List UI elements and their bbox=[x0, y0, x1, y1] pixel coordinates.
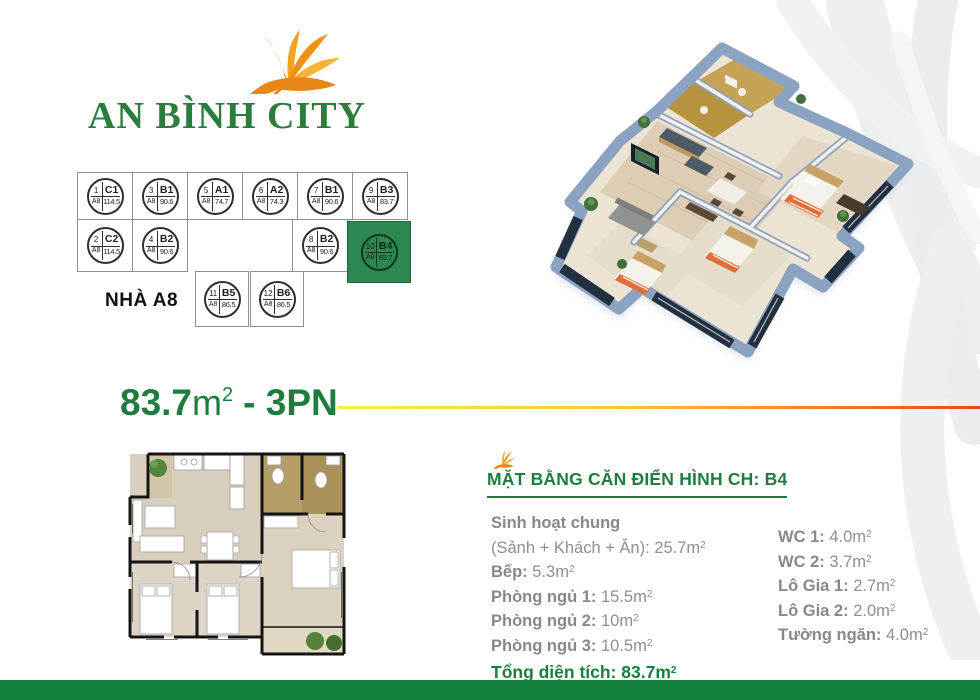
bird-of-paradise-flower-icon-small bbox=[489, 450, 519, 469]
logo-an-binh-city: AN BÌNH CITY bbox=[88, 34, 368, 142]
unit-marker: 7B1 A890.6 bbox=[307, 178, 344, 215]
room-line: Bếp: 5.3m2 bbox=[491, 559, 741, 584]
room-line: Lô Gia 1: 2.7m2 bbox=[778, 573, 968, 598]
floorplan-3d-render bbox=[492, 6, 980, 394]
unit-a8-b5: 11B5 A886.5 bbox=[195, 271, 249, 327]
logo-text: AN BÌNH CITY bbox=[88, 94, 368, 138]
unit-a8-b6: 12B6 A886.5 bbox=[250, 271, 304, 327]
unit-a8-b1a: 3B1 A890.6 bbox=[132, 172, 188, 220]
unit-a8-b3: 9B3 A883.7 bbox=[352, 172, 408, 220]
unit-marker: 1C1 A8114.5 bbox=[87, 178, 124, 215]
building-a8-unit-diagram: 1C1 A8114.5 3B1 A890.6 5A1 A874.7 6A2 A8… bbox=[75, 168, 420, 346]
room-line: Phòng ngủ 1: 15.5m2 bbox=[491, 584, 741, 609]
unit-marker: 11B5 A886.5 bbox=[204, 281, 241, 318]
unit-a8-c1: 1C1 A8114.5 bbox=[77, 172, 133, 220]
unit-marker: 5A1 A874.7 bbox=[197, 178, 234, 215]
area-value: 83.7 bbox=[120, 382, 192, 423]
unit-marker: 4B2 A890.6 bbox=[142, 227, 179, 264]
unit-marker: 2C2 A8114.5 bbox=[87, 227, 124, 264]
room-line: WC 1: 4.0m2 bbox=[778, 524, 968, 549]
unit-a8-b2a: 4B2 A890.6 bbox=[132, 219, 188, 272]
room-line: Phòng ngủ 2: 10m2 bbox=[491, 608, 741, 633]
unit-marker: 12B6 A886.5 bbox=[259, 281, 296, 318]
section-heading: MẶT BẰNG CĂN ĐIỂN HÌNH CH: B4 bbox=[487, 469, 787, 498]
building-name-label: NHÀ A8 bbox=[105, 290, 178, 312]
floorplan-2d-drawing bbox=[112, 442, 370, 680]
room-line: Phòng ngủ 3: 10.5m2 bbox=[491, 633, 741, 658]
unit-a8-b1b: 7B1 A890.6 bbox=[297, 172, 353, 220]
room-areas-right-column: WC 1: 4.0m2 WC 2: 3.7m2 Lô Gia 1: 2.7m2 … bbox=[778, 524, 968, 647]
unit-a8-b4-selected: 10B4 A883.7 bbox=[347, 221, 411, 283]
room-line: (Sảnh + Khách + Ăn): 25.7m2 bbox=[491, 535, 741, 560]
unit-area-title: 83.7m2- 3PN bbox=[120, 382, 338, 424]
unit-marker: 9B3 A883.7 bbox=[362, 178, 399, 215]
unit-a8-a1: 5A1 A874.7 bbox=[187, 172, 243, 220]
area-unit: m bbox=[192, 382, 222, 423]
room-line: Lô Gia 2: 2.0m2 bbox=[778, 598, 968, 623]
unit-marker: 3B1 A890.6 bbox=[142, 178, 179, 215]
room-line: Sinh hoạt chung bbox=[491, 512, 741, 535]
unit-a8-c2: 2C2 A8114.5 bbox=[77, 219, 133, 272]
unit-a8-b2b: 8B2 A890.6 bbox=[292, 219, 348, 272]
unit-a8-a2: 6A2 A874.3 bbox=[242, 172, 298, 220]
unit-marker: 8B2 A890.6 bbox=[302, 227, 339, 264]
bird-of-paradise-flower-icon bbox=[236, 28, 354, 94]
unit-marker-selected: 10B4 A883.7 bbox=[361, 234, 398, 271]
gradient-divider-line bbox=[337, 406, 980, 409]
bedroom-count: - 3PN bbox=[243, 382, 338, 423]
room-line: Tường ngăn: 4.0m2 bbox=[778, 622, 968, 647]
unit-marker: 6A2 A874.3 bbox=[252, 178, 289, 215]
footer-green-bar bbox=[0, 680, 980, 700]
room-line: WC 2: 3.7m2 bbox=[778, 549, 968, 574]
details-heading-block: MẶT BẰNG CĂN ĐIỂN HÌNH CH: B4 bbox=[487, 450, 787, 498]
room-areas-left-column: Sinh hoạt chung (Sảnh + Khách + Ăn): 25.… bbox=[491, 512, 741, 684]
